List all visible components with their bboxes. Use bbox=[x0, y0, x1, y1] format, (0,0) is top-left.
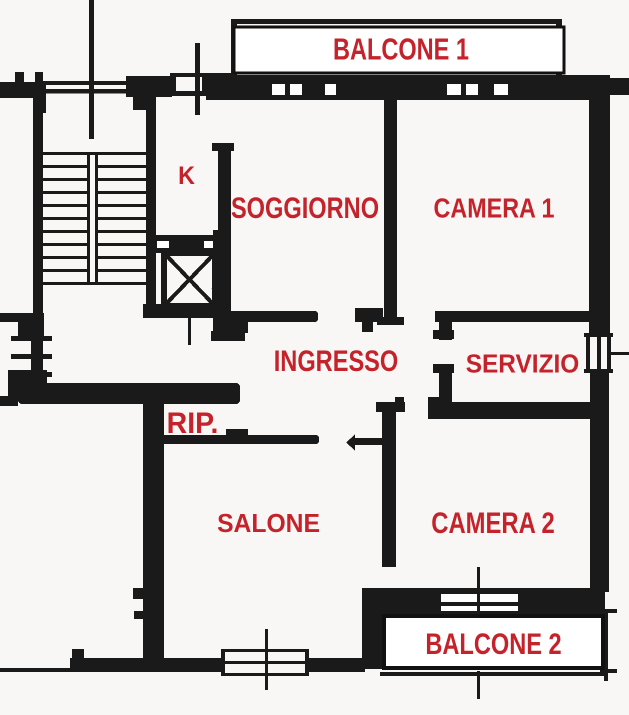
svg-text:CAMERA 2: CAMERA 2 bbox=[431, 507, 554, 540]
svg-text:BALCONE 1: BALCONE 1 bbox=[333, 31, 469, 66]
svg-text:BALCONE 2: BALCONE 2 bbox=[425, 627, 561, 660]
svg-text:SALONE: SALONE bbox=[217, 509, 320, 538]
svg-text:CAMERA 1: CAMERA 1 bbox=[434, 194, 555, 224]
svg-text:SERVIZIO: SERVIZIO bbox=[466, 350, 580, 379]
svg-text:INGRESSO: INGRESSO bbox=[274, 344, 399, 377]
svg-text:RIP.: RIP. bbox=[167, 407, 219, 440]
svg-text:SOGGIORNO: SOGGIORNO bbox=[231, 191, 379, 224]
svg-text:K: K bbox=[178, 162, 195, 190]
